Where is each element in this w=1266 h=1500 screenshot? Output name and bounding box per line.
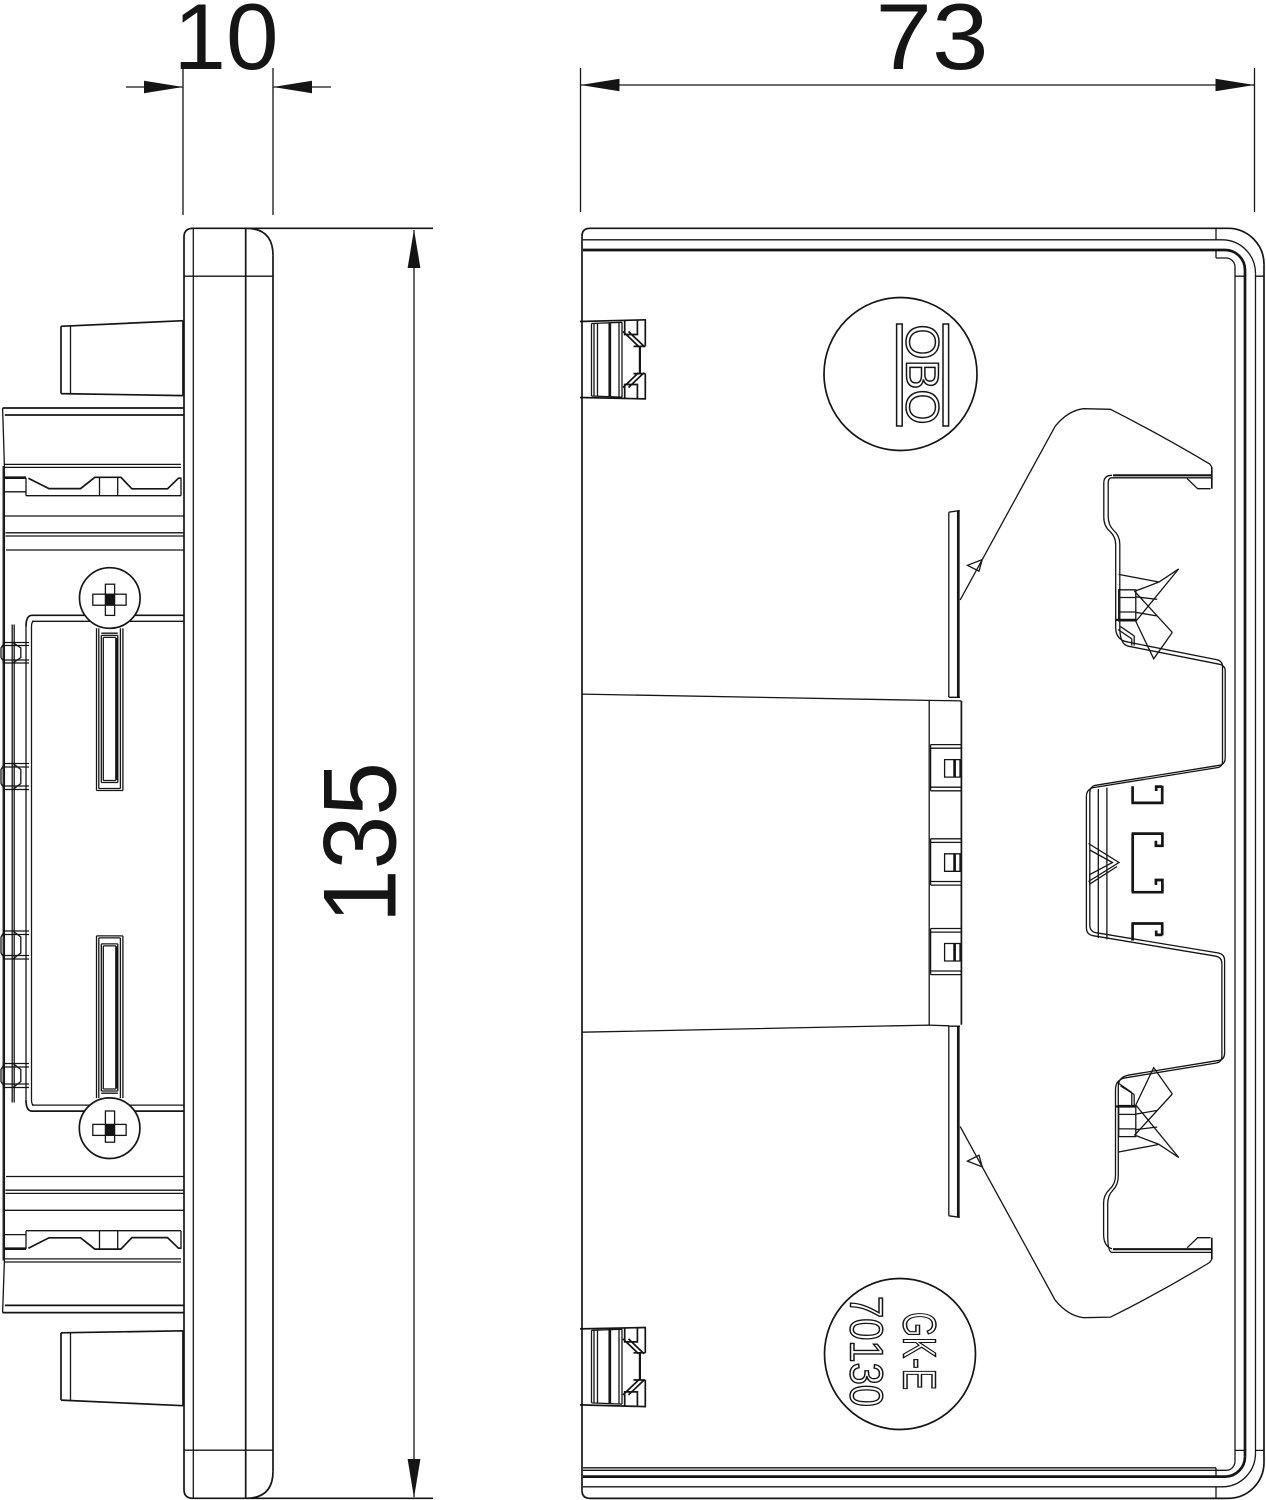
svg-text:GK-E: GK-E xyxy=(894,1312,946,1390)
svg-text:135: 135 xyxy=(303,762,419,923)
svg-text:73: 73 xyxy=(876,0,989,89)
svg-text:10: 10 xyxy=(174,0,279,89)
svg-text:70130: 70130 xyxy=(841,1296,893,1407)
svg-text:OBO: OBO xyxy=(897,325,949,425)
